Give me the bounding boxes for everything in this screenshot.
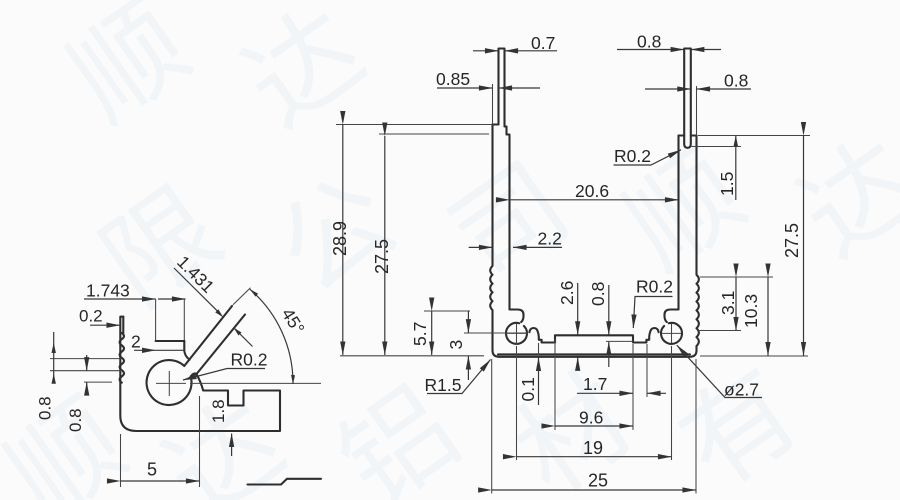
svg-text:1.8: 1.8 — [209, 399, 228, 423]
svg-text:1.743: 1.743 — [86, 281, 130, 301]
svg-text:0.7: 0.7 — [531, 33, 555, 53]
svg-text:ø2.7: ø2.7 — [724, 380, 759, 400]
svg-text:2.2: 2.2 — [538, 229, 562, 249]
svg-text:有: 有 — [659, 347, 820, 500]
svg-text:0.8: 0.8 — [588, 282, 608, 306]
svg-text:R1.5: R1.5 — [425, 375, 462, 395]
svg-text:1.5: 1.5 — [717, 172, 737, 196]
svg-text:顺: 顺 — [0, 379, 147, 500]
svg-text:5.7: 5.7 — [410, 322, 430, 346]
svg-text:0.1: 0.1 — [518, 377, 538, 401]
svg-text:9.6: 9.6 — [579, 408, 603, 428]
svg-text:0.8: 0.8 — [36, 396, 55, 420]
svg-text:27.5: 27.5 — [372, 239, 392, 274]
svg-text:19: 19 — [583, 438, 603, 458]
svg-text:27.5: 27.5 — [782, 223, 802, 258]
svg-text:0.8: 0.8 — [724, 71, 748, 91]
svg-text:0.2: 0.2 — [79, 307, 103, 326]
svg-text:28.9: 28.9 — [330, 221, 350, 256]
svg-text:R0.2: R0.2 — [231, 350, 268, 370]
svg-text:25: 25 — [588, 471, 608, 491]
svg-text:1.7: 1.7 — [583, 374, 607, 394]
svg-text:20.6: 20.6 — [575, 181, 609, 201]
svg-text:R0.2: R0.2 — [636, 277, 673, 297]
svg-text:0.85: 0.85 — [436, 69, 470, 89]
svg-text:达: 达 — [224, 0, 385, 150]
svg-text:R0.2: R0.2 — [614, 146, 651, 166]
svg-text:10.3: 10.3 — [741, 294, 761, 328]
svg-text:0.8: 0.8 — [637, 32, 661, 52]
svg-text:限: 限 — [81, 166, 242, 330]
svg-text:2.6: 2.6 — [557, 281, 577, 305]
svg-text:2: 2 — [131, 332, 141, 352]
svg-text:材: 材 — [493, 353, 654, 500]
svg-text:顺: 顺 — [49, 0, 210, 144]
svg-text:5: 5 — [147, 460, 157, 480]
svg-text:3: 3 — [446, 340, 466, 350]
svg-text:0.8: 0.8 — [66, 408, 85, 432]
svg-text:3.1: 3.1 — [718, 291, 738, 315]
